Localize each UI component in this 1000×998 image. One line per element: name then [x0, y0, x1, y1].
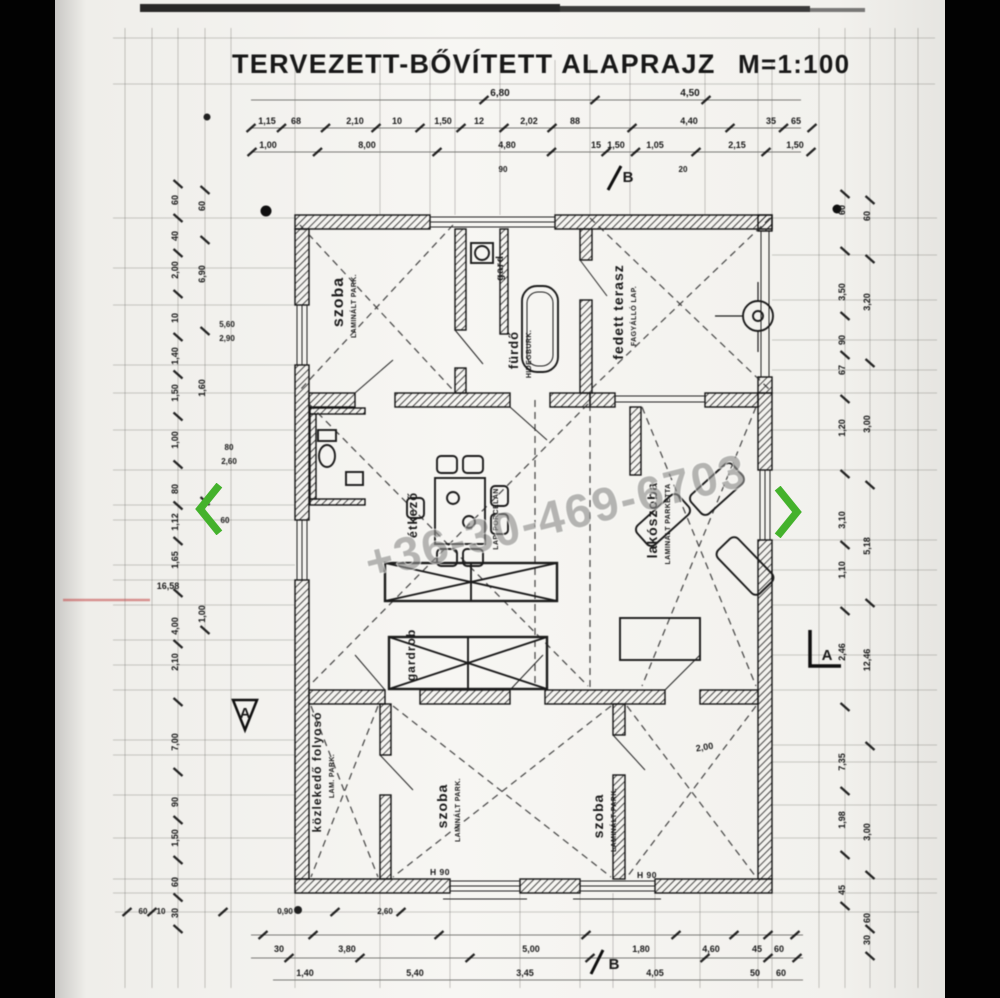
letterbox-left — [0, 0, 55, 998]
dim-label: 2,60 — [221, 457, 237, 466]
dim-label: 30 — [274, 944, 284, 954]
dim-label: 6,80 — [490, 88, 510, 99]
dim-label: 3,50 — [837, 283, 847, 301]
dim-label: 4,40 — [680, 116, 698, 126]
dim-label: 30 — [862, 935, 872, 945]
dim-label: 4,50 — [680, 88, 700, 99]
dim-label: 7,35 — [837, 753, 847, 771]
dim-label: 1,98 — [837, 811, 847, 829]
room-sublabel-kozlekedo-folyoso: LAM. PARK. — [329, 754, 336, 798]
dim-label: 10 — [157, 907, 166, 916]
dim-label: 2,10 — [346, 116, 364, 126]
room-sublabel-furdo: HIDEGBURK. — [526, 330, 533, 378]
dim-label: 60 — [837, 205, 847, 215]
dim-label: 4,80 — [498, 140, 516, 150]
dim-label: 1,65 — [170, 551, 180, 569]
section-marker-B: B — [623, 169, 634, 186]
dim-label: 20 — [679, 165, 688, 174]
dim-label: 35 — [766, 116, 776, 126]
dim-label: 60 — [774, 944, 784, 954]
dim-label: 10 — [170, 313, 180, 323]
dim-label: 12 — [474, 116, 484, 126]
dim-label: 1,15 — [258, 116, 276, 126]
dim-label: 4,00 — [170, 617, 180, 635]
dim-label: 2,15 — [728, 140, 746, 150]
dim-label: 5,18 — [862, 537, 872, 555]
dim-label: 4,05 — [646, 968, 664, 978]
dim-label: 1,50 — [170, 384, 180, 402]
dim-label: 3,20 — [862, 293, 872, 311]
dim-label: 5,60 — [219, 320, 235, 329]
chevron-right-icon[interactable] — [780, 491, 797, 533]
section-marker-A: A — [822, 647, 833, 664]
room-sublabel-szoba-bottom-center: LAMINÁLT PARK. — [453, 778, 462, 842]
room-label-gardrob: gardrob — [404, 629, 418, 681]
dim-label: 8,00 — [358, 140, 376, 150]
dim-label: 12,46 — [862, 649, 872, 672]
chevron-left-icon[interactable] — [200, 488, 217, 530]
dim-label: 1,40 — [170, 347, 180, 365]
dim-label: 2,60 — [377, 907, 393, 916]
dim-label: 1,05 — [646, 140, 664, 150]
dim-label: 1,50 — [434, 116, 452, 126]
dim-label: 60 — [170, 877, 180, 887]
dim-label: 3,00 — [862, 823, 872, 841]
dim-label: 15 — [591, 140, 601, 150]
dim-label: 3,10 — [837, 511, 847, 529]
dim-label: 10 — [392, 116, 402, 126]
dim-label: 3,80 — [338, 944, 356, 954]
dim-label: 1,40 — [296, 968, 314, 978]
dim-label: 1,20 — [837, 419, 847, 437]
dim-label: 1,50 — [786, 140, 804, 150]
dim-label: 16,58 — [157, 581, 180, 591]
window-height-label: H 90 — [637, 870, 657, 880]
room-sublabel-szoba-bottom-right: LAMINÁLT PARK. — [609, 788, 618, 852]
dim-label: 60 — [170, 195, 180, 205]
dim-label: 30 — [170, 908, 180, 918]
dim-label: 2,90 — [219, 334, 235, 343]
dim-label: 67 — [837, 365, 847, 375]
dim-label: 60 — [197, 201, 207, 211]
floor-plan-photo: TERVEZETT-BŐVÍTETT ALAPRAJZ M=1:100 szob… — [55, 0, 945, 998]
grid-line — [807, 148, 816, 156]
letterbox-right — [945, 0, 1000, 998]
dim-label: 90 — [837, 335, 847, 345]
dim-label: 3,00 — [862, 415, 872, 433]
dim-label: 60 — [862, 913, 872, 923]
dim-label: 80 — [225, 443, 234, 452]
dim-label: 45 — [752, 944, 762, 954]
dim-label: 1,60 — [197, 379, 207, 397]
floor-plan-sheet: TERVEZETT-BŐVÍTETT ALAPRAJZ M=1:100 szob… — [55, 0, 945, 998]
dim-label: 45 — [837, 885, 847, 895]
dim-label: 60 — [776, 968, 786, 978]
dim-label: 60 — [862, 211, 872, 221]
room-label-kozlekedo-folyoso: közlekedő folyosó — [310, 711, 324, 832]
dim-label: 0,90 — [277, 907, 293, 916]
gallery-viewer: TERVEZETT-BŐVÍTETT ALAPRAJZ M=1:100 szob… — [0, 0, 1000, 998]
dim-label: 1,00 — [259, 140, 277, 150]
room-sublabel-szoba-top-left: LAMINÁLT PARK. — [349, 274, 358, 338]
dim-label: 2,10 — [170, 653, 180, 671]
room-label-fedett-terasz: fedett terasz — [610, 264, 626, 359]
room-label-szoba-bottom-center: szoba — [434, 784, 450, 829]
dim-label: 68 — [291, 116, 301, 126]
room-label-szoba-bottom-right: szoba — [590, 794, 606, 839]
section-marker-A: A — [240, 705, 251, 722]
dim-label: 6,90 — [197, 265, 207, 283]
dim-label: 88 — [570, 116, 580, 126]
dim-label: 4,60 — [702, 944, 720, 954]
grid-line — [808, 124, 817, 132]
dim-label: 2,02 — [520, 116, 538, 126]
dim-label: 5,40 — [406, 968, 424, 978]
prev-image-button[interactable] — [193, 483, 223, 535]
dim-label: 90 — [170, 797, 180, 807]
sheet-title: TERVEZETT-BŐVÍTETT ALAPRAJZ — [232, 48, 716, 79]
dim-label: 1,10 — [837, 561, 847, 579]
dim-label: 1,50 — [170, 829, 180, 847]
dim-label: 1,80 — [632, 944, 650, 954]
window-height-label: H 90 — [430, 867, 450, 877]
dim-label: 2,00 — [170, 261, 180, 279]
dim-label: 1,00 — [170, 431, 180, 449]
dim-label: 5,00 — [522, 944, 540, 954]
dim-label: 7,00 — [170, 733, 180, 751]
sheet-scale: M=1:100 — [738, 49, 850, 79]
dim-label: 65 — [791, 116, 801, 126]
next-image-button[interactable] — [774, 486, 804, 538]
dim-label: 1,12 — [170, 513, 180, 531]
dim-label: 80 — [170, 484, 180, 494]
dim-label: 40 — [170, 231, 180, 241]
room-label-gardrob-small: gard. — [495, 251, 506, 280]
room-label-szoba-top-left: szoba — [330, 277, 347, 327]
dim-label: 50 — [750, 968, 760, 978]
dim-label: 1,00 — [197, 605, 207, 623]
dim-label: 2,46 — [837, 643, 847, 661]
dim-label: 90 — [499, 165, 508, 174]
room-label-furdo: fürdő — [506, 331, 521, 369]
dim-label: 3,45 — [516, 968, 534, 978]
dim-label: 60 — [139, 907, 148, 916]
section-marker-B: B — [609, 956, 620, 973]
dim-label: 2,00 — [695, 741, 714, 754]
room-sublabel-fedett-terasz: FAGYÁLLÓ LAP. — [629, 286, 638, 346]
